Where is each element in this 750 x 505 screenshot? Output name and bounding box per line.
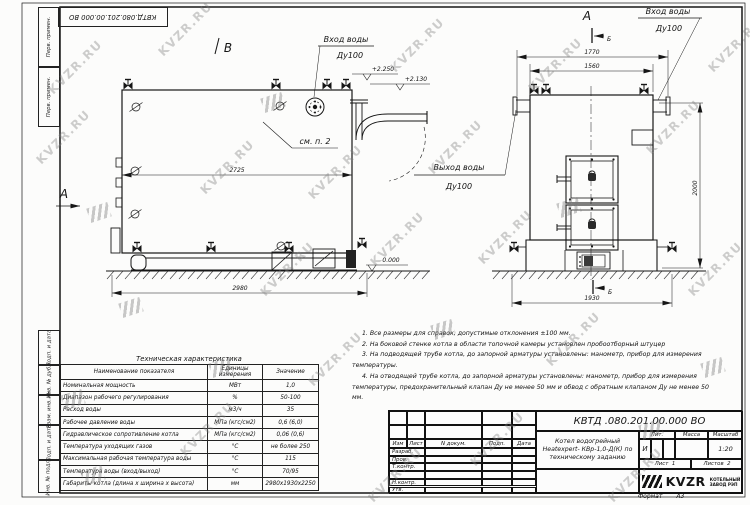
product-name-line: Котел водогрейный [555,438,620,446]
tech-table-wrap: Наименование показателя Единицы измерени… [60,364,319,491]
table-row: Максимальная рабочая температура воды°С1… [61,453,319,465]
company-logo-cell: KVZRКОТЕЛЬНЫЙЗАВОД РЭП [639,469,743,494]
format-label: Формат [638,493,662,500]
date-cell [512,463,536,471]
column-header-cell: N докум. [425,439,482,448]
role-label-cell: Т.контр. [389,463,425,471]
margin-strip-vzam-inv: Взам. инв. № [38,395,60,425]
sheets-value: 2 [727,461,730,467]
lit-value-cell [663,439,675,459]
inlet-dn-label-front: Ду100 [655,24,682,33]
role-label-cell: Утв. [389,487,425,495]
name-cell [425,471,482,479]
inlet-label-front: Вход воды [646,7,691,16]
kvzr-logo-icon [642,475,662,488]
revision-cell [389,411,407,425]
dim-1560: 1560 [584,63,599,70]
sheet-label: Лист [655,461,669,467]
margin-strip-podp-data-2: Подп. и дата [38,425,60,460]
upper-door [557,156,618,203]
table-row: Температура воды (вход/выход)°С70/95 [61,466,319,478]
dim-2980: 2980 [232,285,247,292]
table-row: Рабочее давление водыМПа (кгс/см2)0,6 (6… [61,416,319,428]
inlet-flange [306,98,324,116]
margin-strip-perv-primen-2: Перв. примен. [38,67,60,127]
sheets-label: Листов [703,461,723,467]
format-note: Формат А3 [638,493,748,500]
date-cell [512,479,536,487]
view-b-label: В [224,41,232,55]
sheets-cell: Листов 2 [691,459,743,469]
ground-hatch-right [493,271,698,279]
revision-cell [512,411,536,425]
strip-label: Подп. и дата [46,329,52,366]
side-view: см. п. 2 Вход воды Ду100 В А 2725 2980 +… [56,35,430,297]
note-4: 4. На отводящей трубе котла, до запорной… [352,372,710,404]
see-note-label: см. п. 2 [300,137,331,146]
company-line2: ЗАВОД РЭП [710,482,741,487]
dim-1930: 1930 [584,295,599,302]
tech-col-units: Единицы измерения [208,365,263,380]
ground-hatch-left [107,271,429,279]
table-row: Номинальная мощностьМВт1,0 [61,380,319,392]
role-label-cell: Н.контр. [389,479,425,487]
strip-label: Инв. № подл. [46,458,52,495]
role-label-cell: Пров. [389,456,425,464]
inlet-label: Вход воды [324,35,369,44]
revision-cell [512,425,536,439]
front-view: А Вход воды Ду100 Б 1770 1560 [414,7,706,307]
view-a-label-side: А [59,187,68,201]
elev-0000: 0.000 [382,257,399,264]
table-row: Диапазон рабочего регулирования%50-100 [61,392,319,404]
role-label-cell [389,471,425,479]
column-header-cell: Лист [407,439,425,448]
dim-1770: 1770 [584,49,599,56]
lit-value-cell: И [639,439,651,459]
top-stamp-text: КВТД.080.201.00.000 ВО [69,13,156,21]
revision-cell [482,411,512,425]
format-value: А3 [676,493,684,500]
outlet-label: Выход воды [434,163,485,172]
top-reference-stamp: КВТД.080.201.00.000 ВО [58,7,168,27]
table-row: Габариты котла (длина х ширина х высота)… [61,478,319,490]
outlet-pipe [350,100,427,181]
signature-cell [482,479,512,487]
product-name-line: техническому заданию [549,454,625,462]
scale-header-cell: Масштаб [708,431,743,439]
signature-cell [482,463,512,471]
column-header-cell: Подп. [482,439,512,448]
date-cell [512,471,536,479]
note-3: 3. На подводящей трубе котла, до запорно… [352,350,710,371]
drawing-sheet: { "watermark": { "text": "KVZR.RU" }, "f… [0,0,750,500]
revision-cell [482,425,512,439]
strip-label: Перв. примен. [46,17,52,57]
elev-2250: +2.250 [372,66,394,73]
product-name-cell: Котел водогрейныйHeatexpert- КВр-1,0-Д(К… [536,431,639,469]
signature-cell [482,487,512,495]
tech-col-value: Значение [263,365,319,380]
outlet-dn-label: Ду100 [445,182,472,191]
kvzr-logo-text: KVZR [666,474,706,489]
margin-strip-podp-data-1: Подп. и дата [38,330,60,365]
mass-header-cell: Масса [675,431,708,439]
margin-strip-perv-primen-1: Перв. примен. [38,7,60,67]
notes-block: 1. Все размеры для справок, допустимые о… [352,329,710,404]
note-1: 1. Все размеры для справок, допустимые о… [352,329,710,340]
section-b-top: Б [607,36,611,43]
lower-door [557,205,618,250]
revision-cell [425,425,482,439]
product-name-line: Heatexpert- КВр-1,0-Д(К) по [543,446,633,454]
date-cell [512,487,536,495]
dim-2725: 2725 [229,167,244,174]
scale-value-cell: 1:20 [708,439,743,459]
name-cell [425,479,482,487]
table-row: Гидравлическое сопротивление котлаМПа (к… [61,429,319,441]
tech-table-title: Техническая характеристика [60,355,318,363]
column-header-cell: Изм [389,439,407,448]
signature-cell [482,456,512,464]
revision-cell [407,411,425,425]
name-cell [425,456,482,464]
doc-number-cell: КВТД .080.201.00.000 ВО [536,411,743,431]
strip-label: Взам. инв. № [46,392,52,429]
revision-cell [425,411,482,425]
elev-2130: +2.130 [405,76,427,83]
mass-value-cell [675,439,708,459]
name-cell [425,463,482,471]
table-row: Температура уходящих газов°Сне более 250 [61,441,319,453]
lit-header-cell: Лит. [639,431,675,439]
date-cell [512,448,536,456]
dim-2000: 2000 [692,180,699,195]
signature-cell [482,471,512,479]
name-cell [425,487,482,495]
name-cell [425,448,482,456]
view-a-label-front: А [582,9,591,23]
note-2: 2. На боковой стенке котла в области топ… [352,340,710,351]
section-b-bottom: Б [608,289,612,296]
strip-label: Подп. и дата [46,424,52,461]
tech-col-name: Наименование показателя [61,365,208,380]
margin-strip-inv-podl: Инв. № подл. [38,460,60,493]
revision-cell [407,425,425,439]
title-block: ИзмЛистN докум.Подп.ДатаРазраб.Пров.Т.ко… [388,410,742,493]
revision-cell [389,425,407,439]
inlet-dn-label: Ду100 [336,51,363,60]
side-flanges [513,97,670,115]
table-row: Расход водым3/ч35 [61,404,319,416]
lit-value-cell [651,439,663,459]
boiler-base [131,249,357,270]
sheet-cell: Лист 1 [639,459,691,469]
empty-cell [536,469,639,494]
column-header-cell: Дата [512,439,536,448]
sheet-value: 1 [672,461,675,467]
date-cell [512,456,536,464]
strip-label: Перв. примен. [46,77,52,117]
role-label-cell: Разраб. [389,448,425,456]
signature-cell [482,448,512,456]
inspection-window [632,130,653,145]
tech-table: Наименование показателя Единицы измерени… [60,364,319,491]
